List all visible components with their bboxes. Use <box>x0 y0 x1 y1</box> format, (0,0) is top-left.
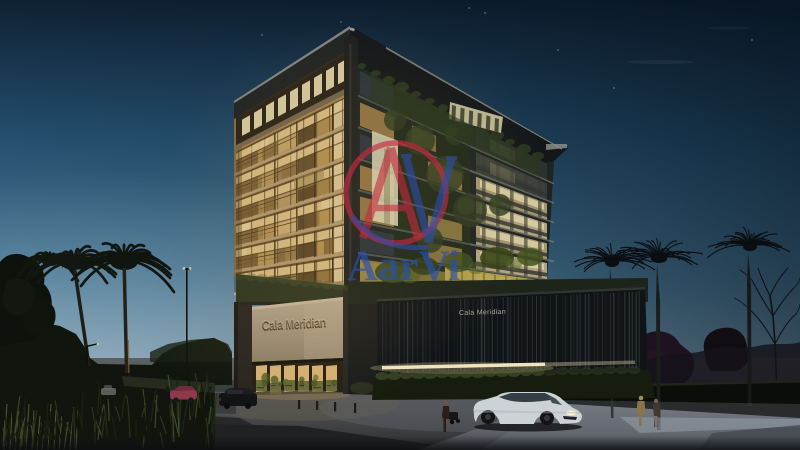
svg-text:AarVi: AarVi <box>347 243 460 290</box>
